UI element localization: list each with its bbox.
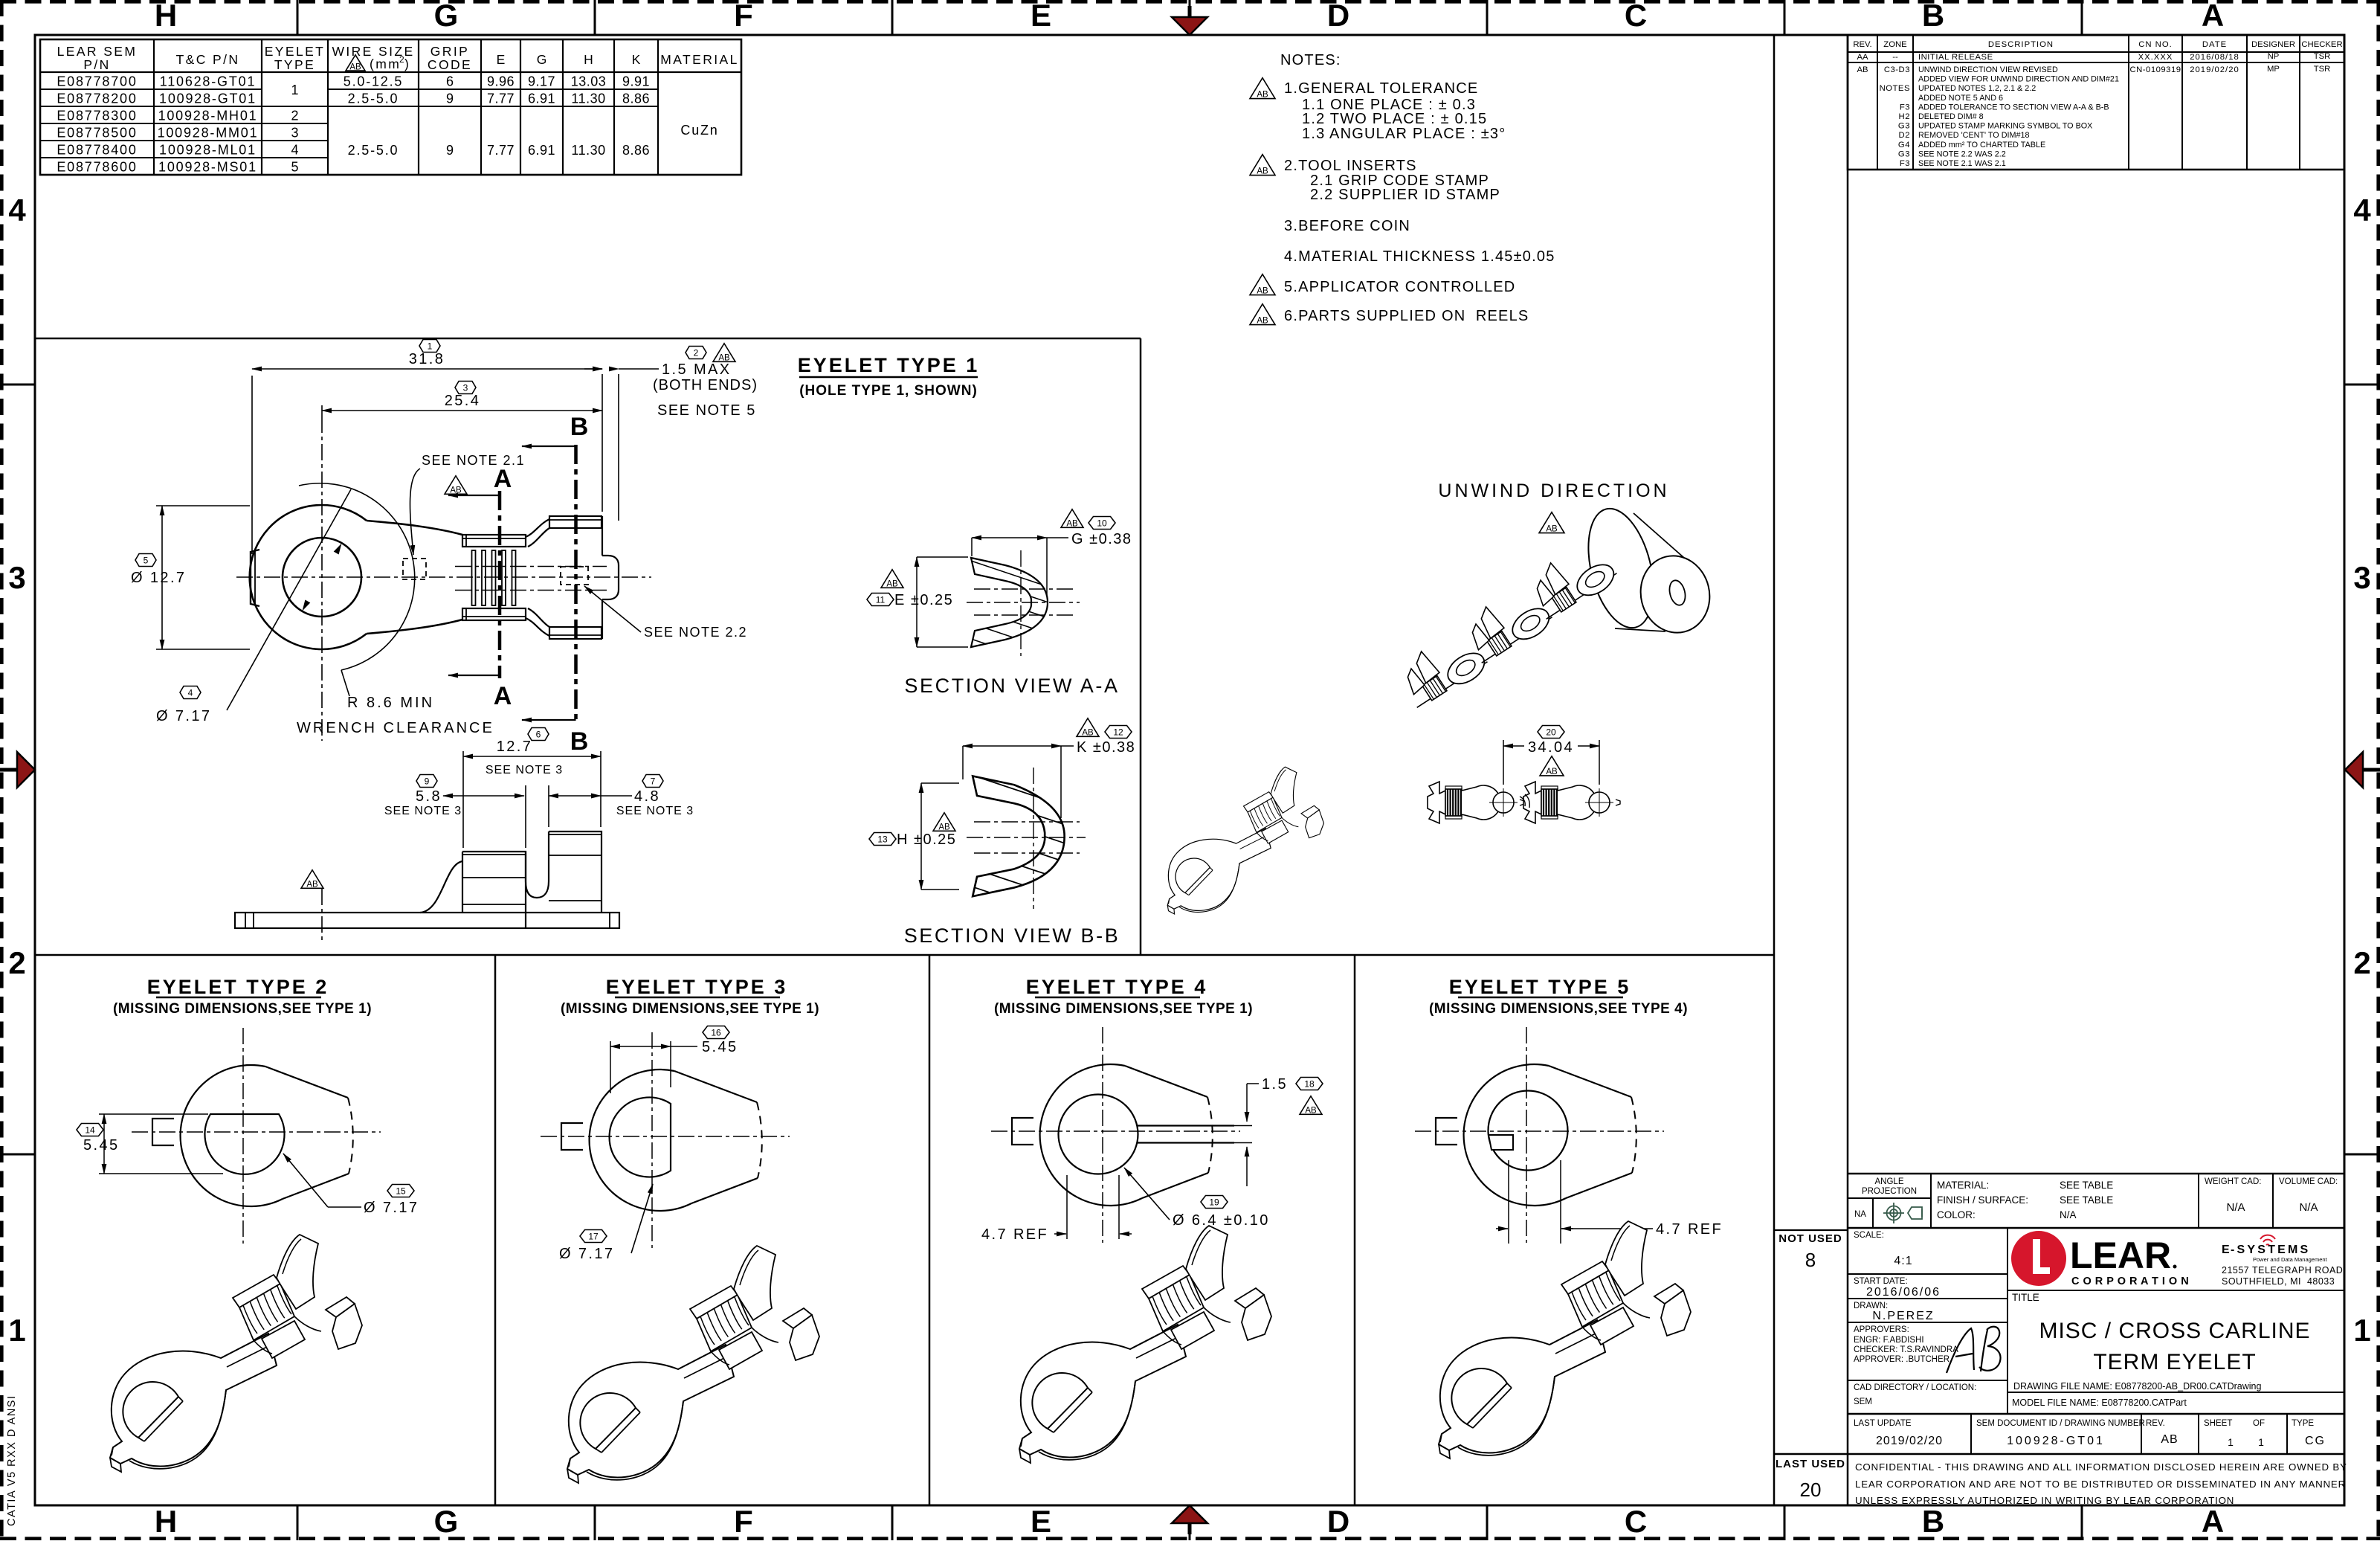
- svg-text:4: 4: [291, 143, 298, 158]
- svg-text:MP: MP: [2267, 65, 2280, 74]
- svg-text:(HOLE TYPE 1, SHOWN): (HOLE TYPE 1, SHOWN): [799, 383, 978, 399]
- svg-text:7.77: 7.77: [487, 91, 515, 106]
- svg-text:1: 1: [428, 341, 433, 351]
- svg-text:1.3 ANGULAR PLACE : ±3°: 1.3 ANGULAR PLACE : ±3°: [1302, 126, 1506, 142]
- svg-text:4: 4: [2353, 193, 2371, 228]
- svg-text:TSR: TSR: [2314, 65, 2331, 74]
- svg-text:AB: AB: [718, 353, 730, 362]
- svg-text:2.5-5.0: 2.5-5.0: [348, 143, 399, 158]
- svg-text:SECTION VIEW B-B: SECTION VIEW B-B: [904, 924, 1120, 947]
- svg-text:5: 5: [291, 160, 298, 175]
- svg-text:NP: NP: [2268, 52, 2280, 61]
- svg-text:100928-MH01: 100928-MH01: [158, 109, 258, 123]
- svg-text:SEE NOTE 2.1: SEE NOTE 2.1: [422, 453, 525, 468]
- svg-text:6: 6: [536, 729, 541, 739]
- svg-text:AB: AB: [1546, 768, 1558, 776]
- svg-text:H ±0.25: H ±0.25: [897, 831, 956, 848]
- svg-text:REV.: REV.: [2146, 1419, 2165, 1428]
- svg-text:4: 4: [8, 193, 26, 228]
- svg-text:A: A: [494, 682, 512, 710]
- svg-text:ADDED mm² TO CHARTED TABLE: ADDED mm² TO CHARTED TABLE: [1918, 141, 2045, 149]
- svg-text:PROJECTION: PROJECTION: [1862, 1187, 1917, 1196]
- svg-text:CG: CG: [2305, 1435, 2326, 1447]
- svg-text:(MISSING DIMENSIONS,SEE TYPE 4: (MISSING DIMENSIONS,SEE TYPE 4): [1429, 1001, 1688, 1017]
- svg-text:EYELET TYPE 3: EYELET TYPE 3: [606, 976, 788, 998]
- svg-text:DATE: DATE: [2202, 40, 2227, 49]
- svg-text:H: H: [584, 52, 593, 67]
- svg-text:AB: AB: [450, 486, 462, 495]
- svg-text:Ø 7.17: Ø 7.17: [156, 708, 211, 724]
- svg-text:N/A: N/A: [2299, 1201, 2318, 1214]
- svg-text:D2: D2: [1899, 131, 1910, 140]
- svg-text:5.0-12.5: 5.0-12.5: [344, 74, 403, 89]
- svg-text:WRENCH CLEARANCE: WRENCH CLEARANCE: [297, 720, 494, 736]
- svg-text:SOUTHFIELD, MI 48033: SOUTHFIELD, MI 48033: [2222, 1276, 2335, 1287]
- svg-text:C: C: [1625, 0, 1647, 33]
- svg-text:5: 5: [143, 555, 149, 565]
- svg-text:TSR: TSR: [2314, 52, 2331, 61]
- svg-text:P/N: P/N: [83, 57, 110, 72]
- svg-text:AB: AB: [1305, 1106, 1317, 1115]
- svg-text:6.PARTS SUPPLIED ON REELS: 6.PARTS SUPPLIED ON REELS: [1284, 308, 1529, 324]
- svg-text:2.TOOL INSERTS: 2.TOOL INSERTS: [1284, 158, 1417, 174]
- svg-text:AB: AB: [306, 880, 318, 889]
- svg-text:SEE NOTE 5: SEE NOTE 5: [657, 402, 756, 419]
- svg-text:100928-GT01: 100928-GT01: [2007, 1435, 2105, 1447]
- svg-text:NOTES: NOTES: [1880, 84, 1910, 93]
- svg-text:EYELET: EYELET: [265, 44, 326, 59]
- svg-text:SEE NOTE 2.1 WAS 2.1: SEE NOTE 2.1 WAS 2.1: [1918, 159, 2006, 168]
- svg-text:G ±0.38: G ±0.38: [1071, 531, 1132, 547]
- svg-text:5.APPLICATOR CONTROLLED: 5.APPLICATOR CONTROLLED: [1284, 279, 1515, 295]
- svg-text:SEM: SEM: [1854, 1397, 1872, 1406]
- svg-text:CATIA V5 RXX D ANSI: CATIA V5 RXX D ANSI: [6, 1395, 18, 1526]
- svg-text:1: 1: [8, 1313, 25, 1348]
- svg-text:GRIP: GRIP: [430, 44, 469, 59]
- svg-text:E08778400: E08778400: [57, 143, 137, 158]
- svg-text:SHEET: SHEET: [2204, 1419, 2232, 1428]
- svg-text:(MISSING DIMENSIONS,SEE TYPE 1: (MISSING DIMENSIONS,SEE TYPE 1): [994, 1001, 1253, 1017]
- svg-text:Ø 12.7: Ø 12.7: [131, 570, 186, 586]
- svg-text:B: B: [570, 727, 589, 756]
- svg-text:E08778600: E08778600: [57, 160, 137, 175]
- svg-text:INITIAL RELEASE: INITIAL RELEASE: [1918, 53, 1993, 62]
- svg-text:B: B: [1922, 0, 1944, 33]
- svg-text:10: 10: [1097, 518, 1107, 528]
- svg-text:100928-MS01: 100928-MS01: [158, 160, 257, 175]
- svg-text:CuZn: CuZn: [680, 123, 718, 138]
- svg-text:AB: AB: [1546, 524, 1558, 533]
- svg-text:AB: AB: [349, 62, 361, 71]
- svg-text:H2: H2: [1899, 112, 1910, 121]
- svg-text:UNWIND DIRECTION VIEW REVISED: UNWIND DIRECTION VIEW REVISED: [1918, 65, 2058, 74]
- svg-text:Ø 6.4 ±0.10: Ø 6.4 ±0.10: [1173, 1212, 1270, 1229]
- svg-text:TYPE: TYPE: [274, 57, 315, 72]
- svg-text:DRAWING FILE NAME: E08778200-A: DRAWING FILE NAME: E08778200-AB_DR00.CAT…: [2013, 1381, 2261, 1392]
- svg-text:SECTION VIEW A-A: SECTION VIEW A-A: [904, 675, 1119, 697]
- svg-text:12: 12: [1113, 727, 1123, 737]
- svg-text:LAST USED: LAST USED: [1776, 1458, 1845, 1470]
- svg-text:SEE TABLE: SEE TABLE: [2060, 1194, 2113, 1206]
- svg-text:18: 18: [1304, 1078, 1315, 1089]
- svg-text:XX.XXX: XX.XXX: [2138, 53, 2173, 62]
- svg-text:E08778500: E08778500: [57, 126, 137, 141]
- svg-text:SEE NOTE 3: SEE NOTE 3: [616, 805, 694, 817]
- svg-text:11: 11: [876, 594, 886, 605]
- svg-text:2019/02/20: 2019/02/20: [1876, 1435, 1943, 1447]
- svg-text:2: 2: [8, 945, 25, 980]
- svg-text:): ): [404, 57, 409, 71]
- svg-text:START DATE:: START DATE:: [1854, 1277, 1908, 1286]
- svg-text:APPROVER: .BUTCHER: APPROVER: .BUTCHER: [1854, 1355, 1950, 1364]
- svg-text:T&C P/N: T&C P/N: [176, 52, 240, 67]
- svg-text:2: 2: [694, 347, 699, 358]
- svg-text:20: 20: [1546, 727, 1556, 737]
- svg-text:34.04: 34.04: [1528, 739, 1574, 756]
- svg-text:3: 3: [2353, 560, 2370, 595]
- svg-text:NOT USED: NOT USED: [1778, 1232, 1842, 1245]
- svg-text:E: E: [497, 52, 506, 67]
- svg-text:EYELET TYPE 4: EYELET TYPE 4: [1026, 976, 1208, 998]
- svg-text:D: D: [1327, 0, 1349, 33]
- svg-text:12.7: 12.7: [497, 739, 533, 755]
- svg-text:WEIGHT CAD:: WEIGHT CAD:: [2205, 1177, 2261, 1186]
- svg-text:F3: F3: [1900, 159, 1910, 168]
- svg-text:N/A: N/A: [2060, 1209, 2077, 1220]
- svg-text:DELETED DIM# 8: DELETED DIM# 8: [1918, 112, 1984, 121]
- svg-text:AB: AB: [886, 579, 898, 588]
- svg-text:8.86: 8.86: [622, 143, 650, 158]
- svg-text:H: H: [155, 1504, 177, 1539]
- svg-text:100928-ML01: 100928-ML01: [159, 143, 257, 158]
- svg-text:4.MATERIAL THICKNESS 1.45±0.05: 4.MATERIAL THICKNESS 1.45±0.05: [1284, 248, 1555, 265]
- svg-text:1.GENERAL TOLERANCE: 1.GENERAL TOLERANCE: [1284, 80, 1478, 97]
- svg-text:MATERIAL:: MATERIAL:: [1937, 1180, 1989, 1191]
- svg-text:COLOR:: COLOR:: [1937, 1209, 1976, 1220]
- svg-text:G: G: [537, 52, 547, 67]
- svg-text:UPDATED STAMP MARKING SYMBOL T: UPDATED STAMP MARKING SYMBOL TO BOX: [1918, 122, 2092, 131]
- svg-text:LEAR: LEAR: [2070, 1235, 2171, 1276]
- svg-text:13: 13: [877, 834, 888, 844]
- svg-text:K: K: [632, 52, 641, 67]
- svg-text:9: 9: [425, 776, 430, 786]
- svg-text:E08778300: E08778300: [57, 109, 137, 123]
- svg-text:CN-0109319: CN-0109319: [2129, 65, 2181, 74]
- svg-text:AB: AB: [1257, 90, 1268, 99]
- svg-text:NA: NA: [1854, 1210, 1866, 1219]
- svg-text:SEE NOTE 2.2 WAS 2.2: SEE NOTE 2.2 WAS 2.2: [1918, 149, 2006, 158]
- svg-text:4: 4: [188, 687, 193, 698]
- svg-text:SEE NOTE 3: SEE NOTE 3: [486, 764, 563, 776]
- svg-text:A: A: [2202, 1504, 2224, 1539]
- svg-text:15: 15: [396, 1186, 406, 1196]
- svg-text:(MISSING DIMENSIONS,SEE TYPE 1: (MISSING DIMENSIONS,SEE TYPE 1): [113, 1001, 372, 1017]
- svg-text:2.5-5.0: 2.5-5.0: [348, 91, 399, 106]
- svg-text:G4: G4: [1898, 141, 1910, 149]
- svg-text:LAST UPDATE: LAST UPDATE: [1854, 1419, 1912, 1428]
- svg-text:4.8: 4.8: [634, 788, 660, 805]
- svg-text:25.4: 25.4: [445, 393, 481, 409]
- svg-text:100928-MM01: 100928-MM01: [158, 126, 259, 141]
- svg-text:11.30: 11.30: [571, 91, 605, 106]
- svg-text:A: A: [494, 465, 512, 493]
- svg-text:E08778200: E08778200: [57, 91, 137, 106]
- svg-text:3: 3: [291, 126, 298, 141]
- svg-text:C3-D3: C3-D3: [1884, 65, 1910, 74]
- svg-text:4:1: 4:1: [1894, 1255, 1912, 1267]
- svg-text:AB: AB: [2161, 1433, 2178, 1446]
- svg-text:EYELET TYPE 2: EYELET TYPE 2: [147, 976, 329, 998]
- svg-text:6: 6: [446, 74, 454, 89]
- svg-text:3: 3: [8, 560, 25, 595]
- svg-text:8.86: 8.86: [622, 91, 650, 106]
- svg-text:4.7 REF: 4.7 REF: [981, 1226, 1048, 1243]
- svg-text:SCALE:: SCALE:: [1854, 1231, 1884, 1240]
- svg-text:LEAR SEM: LEAR SEM: [57, 44, 138, 59]
- svg-text:ENGR: F.ABDISHI: ENGR: F.ABDISHI: [1854, 1336, 1924, 1345]
- svg-text:TYPE: TYPE: [2292, 1419, 2314, 1428]
- svg-text:UNWIND DIRECTION: UNWIND DIRECTION: [1438, 480, 1669, 501]
- svg-text:1.5 MAX: 1.5 MAX: [662, 361, 732, 378]
- svg-text:ADDED TOLERANCE TO SECTION VIE: ADDED TOLERANCE TO SECTION VIEW A-A & B-…: [1918, 103, 2109, 112]
- svg-text:SEM DOCUMENT ID / DRAWING NUMB: SEM DOCUMENT ID / DRAWING NUMBER: [1976, 1419, 2145, 1428]
- svg-text:(mm: (mm: [370, 57, 401, 71]
- svg-text:7: 7: [651, 776, 656, 786]
- svg-text:17: 17: [588, 1231, 599, 1241]
- svg-text:110628-GT01: 110628-GT01: [160, 74, 257, 89]
- svg-text:2: 2: [291, 109, 298, 123]
- svg-text:E08778700: E08778700: [57, 74, 137, 89]
- svg-text:E ±0.25: E ±0.25: [894, 592, 953, 608]
- svg-text:LEAR CORPORATION AND ARE NOT T: LEAR CORPORATION AND ARE NOT TO BE DISTR…: [1855, 1479, 2346, 1490]
- svg-text:13.03: 13.03: [571, 74, 607, 89]
- svg-text:ADDED VIEW FOR UNWIND DIRECTIO: ADDED VIEW FOR UNWIND DIRECTION AND DIM#…: [1918, 75, 2119, 84]
- svg-text:16: 16: [711, 1027, 721, 1038]
- svg-text:7.77: 7.77: [487, 143, 515, 158]
- svg-text:Power and Data Management: Power and Data Management: [2253, 1256, 2328, 1263]
- svg-text:C: C: [1625, 1504, 1647, 1539]
- svg-text:AB: AB: [1082, 728, 1094, 737]
- svg-text:SEE TABLE: SEE TABLE: [2060, 1180, 2113, 1191]
- svg-text:SEE NOTE 2.2: SEE NOTE 2.2: [644, 625, 747, 640]
- svg-text:AB: AB: [1066, 519, 1078, 528]
- svg-text:G: G: [434, 1504, 459, 1539]
- svg-text:100928-GT01: 100928-GT01: [159, 91, 257, 106]
- svg-text:MODEL FILE NAME: E08778200.CAT: MODEL FILE NAME: E08778200.CATPart: [2012, 1397, 2187, 1408]
- svg-text:(BOTH ENDS): (BOTH ENDS): [653, 377, 758, 393]
- svg-text:UNLESS EXPRESSLY AUTHORIZED IN: UNLESS EXPRESSLY AUTHORIZED IN WRITING B…: [1855, 1495, 2234, 1506]
- svg-text:2: 2: [399, 54, 404, 65]
- svg-text:9.17: 9.17: [528, 74, 555, 89]
- svg-text:2.2 SUPPLIER ID STAMP: 2.2 SUPPLIER ID STAMP: [1310, 187, 1500, 203]
- svg-text:-SYSTEMS: -SYSTEMS: [2231, 1244, 2310, 1256]
- svg-text:R 8.6 MIN: R 8.6 MIN: [347, 695, 434, 711]
- svg-text:31.8: 31.8: [409, 351, 445, 367]
- svg-text:F: F: [734, 0, 753, 33]
- svg-text:20: 20: [1800, 1479, 1822, 1501]
- svg-text:19: 19: [1209, 1197, 1219, 1207]
- svg-text:8: 8: [1805, 1249, 1816, 1271]
- svg-text:5.45: 5.45: [83, 1137, 120, 1154]
- svg-text:Ø 7.17: Ø 7.17: [364, 1200, 419, 1216]
- svg-text:6.91: 6.91: [528, 143, 555, 158]
- svg-text:1: 1: [2258, 1436, 2264, 1448]
- svg-text:1.5: 1.5: [1262, 1076, 1288, 1093]
- svg-text:CHECKER: T.S.RAVINDRA: CHECKER: T.S.RAVINDRA: [1854, 1345, 1958, 1354]
- svg-text:A: A: [2202, 0, 2224, 33]
- svg-text:C O R P O R A T I O N: C O R P O R A T I O N: [2071, 1276, 2189, 1287]
- svg-text:4.7 REF: 4.7 REF: [1656, 1221, 1723, 1238]
- svg-text:AA: AA: [1857, 53, 1868, 62]
- svg-text:(MISSING DIMENSIONS,SEE TYPE 1: (MISSING DIMENSIONS,SEE TYPE 1): [561, 1001, 819, 1017]
- svg-text:AB: AB: [1257, 316, 1268, 325]
- svg-text:1.2 TWO PLACE : ± 0.15: 1.2 TWO PLACE : ± 0.15: [1302, 111, 1487, 127]
- svg-text:SEE NOTE 3: SEE NOTE 3: [384, 805, 462, 817]
- svg-text:21557 TELEGRAPH ROAD: 21557 TELEGRAPH ROAD: [2222, 1265, 2343, 1276]
- svg-text:2: 2: [2353, 945, 2370, 980]
- svg-text:AB: AB: [1257, 286, 1268, 295]
- svg-text:AB: AB: [938, 823, 950, 831]
- svg-text:9.96: 9.96: [487, 74, 515, 89]
- svg-text:OF: OF: [2253, 1419, 2265, 1428]
- svg-text:REMOVED 'CENT' TO DIM#18: REMOVED 'CENT' TO DIM#18: [1918, 131, 2030, 140]
- svg-text:MATERIAL: MATERIAL: [660, 52, 738, 67]
- svg-text:1: 1: [291, 83, 298, 97]
- svg-text:11.30: 11.30: [571, 143, 605, 158]
- svg-text:CODE: CODE: [428, 57, 472, 72]
- svg-text:3: 3: [463, 382, 468, 393]
- svg-text:VOLUME CAD:: VOLUME CAD:: [2279, 1177, 2338, 1186]
- svg-text:ZONE: ZONE: [1883, 40, 1907, 49]
- svg-text:CAD DIRECTORY / LOCATION:: CAD DIRECTORY / LOCATION:: [1854, 1383, 1976, 1392]
- svg-text:E: E: [1031, 1504, 1051, 1539]
- svg-text:2019/02/20: 2019/02/20: [2190, 65, 2239, 74]
- svg-text:REV.: REV.: [1853, 40, 1871, 49]
- svg-text:CHECKER: CHECKER: [2301, 40, 2342, 49]
- svg-text:--: --: [1892, 53, 1898, 62]
- svg-text:FINISH / SURFACE:: FINISH / SURFACE:: [1937, 1194, 2028, 1206]
- svg-text:5.45: 5.45: [702, 1039, 738, 1055]
- svg-text:9.91: 9.91: [622, 74, 650, 89]
- svg-text:ANGLE: ANGLE: [1875, 1177, 1904, 1186]
- svg-text:TITLE: TITLE: [2012, 1292, 2039, 1303]
- svg-text:2016/08/18: 2016/08/18: [2190, 53, 2239, 62]
- svg-text:E: E: [2222, 1244, 2230, 1256]
- svg-text:MISC / CROSS CARLINE: MISC / CROSS CARLINE: [2039, 1319, 2310, 1343]
- svg-text:CN NO.: CN NO.: [2138, 40, 2173, 49]
- svg-text:Ø 7.17: Ø 7.17: [559, 1246, 614, 1262]
- svg-text:H: H: [155, 0, 177, 33]
- svg-text:DESCRIPTION: DESCRIPTION: [1988, 40, 2054, 49]
- svg-text:EYELET TYPE 1: EYELET TYPE 1: [798, 354, 980, 376]
- svg-text:B: B: [1922, 1504, 1944, 1539]
- svg-text:UPDATED NOTES 1.2, 2.1 & 2.2: UPDATED NOTES 1.2, 2.1 & 2.2: [1918, 84, 2036, 93]
- svg-text:D: D: [1327, 1504, 1349, 1539]
- svg-text:TERM EYELET: TERM EYELET: [2093, 1350, 2256, 1374]
- svg-text:6.91: 6.91: [528, 91, 555, 106]
- svg-text:G3: G3: [1898, 149, 1910, 158]
- svg-text:14: 14: [85, 1125, 95, 1135]
- svg-text:AB: AB: [1257, 167, 1268, 176]
- svg-text:NOTES:: NOTES:: [1280, 52, 1341, 68]
- svg-text:EYELET TYPE 5: EYELET TYPE 5: [1449, 976, 1631, 998]
- svg-text:G: G: [434, 0, 459, 33]
- svg-text:DESIGNER: DESIGNER: [2251, 40, 2295, 49]
- svg-text:1: 1: [2353, 1313, 2370, 1348]
- svg-text:AB: AB: [1857, 65, 1868, 74]
- svg-text:N.PEREZ: N.PEREZ: [1872, 1310, 1934, 1322]
- svg-text:APPROVERS:: APPROVERS:: [1854, 1325, 1909, 1334]
- svg-text:N/A: N/A: [2226, 1201, 2245, 1214]
- svg-text:E: E: [1031, 0, 1051, 33]
- svg-text:5.8: 5.8: [416, 788, 442, 805]
- svg-text:B: B: [570, 413, 589, 441]
- svg-text:K ±0.38: K ±0.38: [1077, 739, 1135, 756]
- svg-text:F: F: [734, 1504, 753, 1539]
- svg-text:F3: F3: [1900, 103, 1910, 112]
- svg-text:9: 9: [446, 143, 454, 158]
- svg-text:3.BEFORE COIN: 3.BEFORE COIN: [1284, 218, 1410, 234]
- svg-text:2016/06/06: 2016/06/06: [1866, 1286, 1941, 1299]
- svg-text:CONFIDENTIAL - THIS DRAWING AN: CONFIDENTIAL - THIS DRAWING AND ALL INFO…: [1855, 1461, 2347, 1473]
- svg-text:G3: G3: [1898, 122, 1910, 131]
- svg-text:1: 1: [2228, 1436, 2234, 1448]
- svg-text:9: 9: [446, 91, 454, 106]
- svg-text:ADDED NOTE 5 AND 6: ADDED NOTE 5 AND 6: [1918, 94, 2003, 103]
